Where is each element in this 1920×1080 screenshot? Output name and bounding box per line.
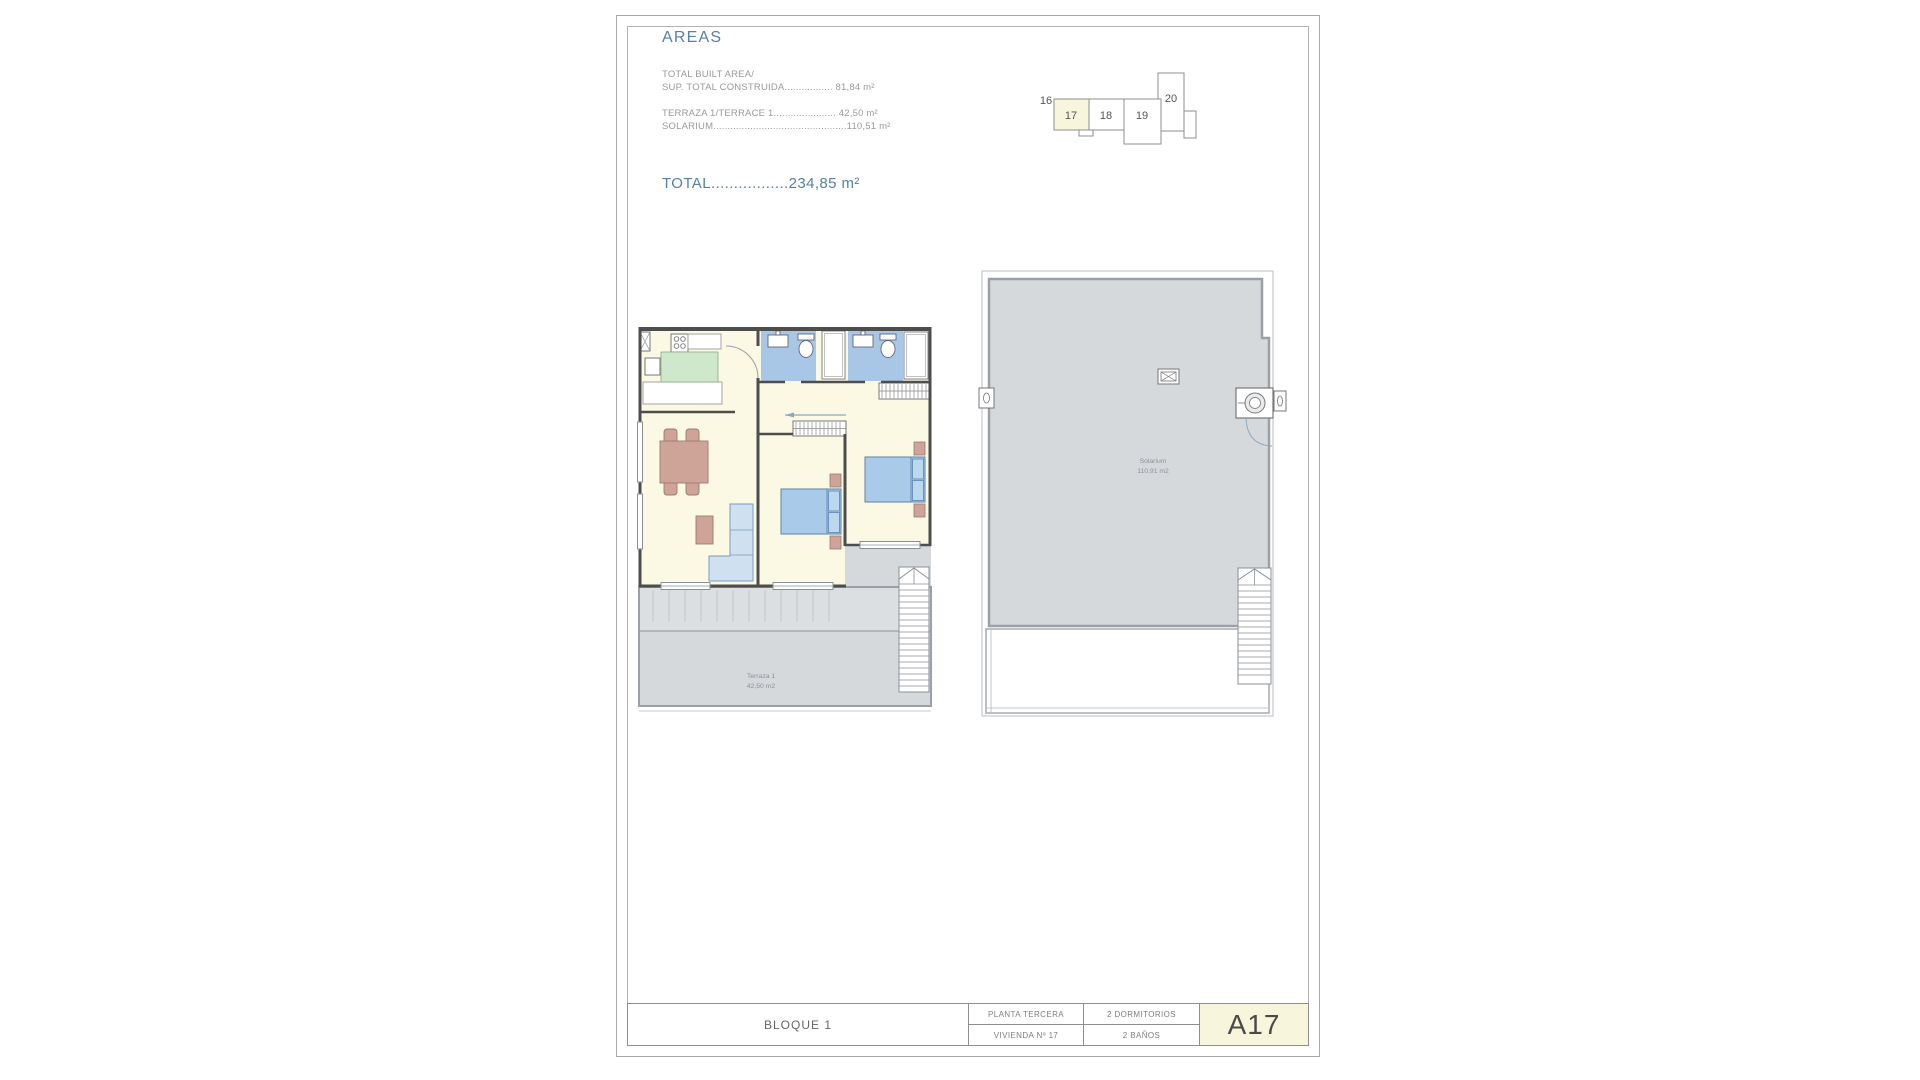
solarium-area-label: 110,91 m2 [1137,468,1169,475]
kitchen-counter-low [643,382,722,404]
kitchen-island [661,352,718,382]
sink-1-icon [768,335,788,347]
bed-1 [781,489,841,534]
toilet-1-icon [799,341,813,358]
terrace-area-label: 42,50 m2 [747,683,776,690]
shower-2-inner [907,335,926,377]
apartment-floor-plan: Terraza 1 42,50 m2 [637,322,937,714]
key-unit-19-label: 19 [1136,110,1148,122]
floor-cell: PLANTA TERCERA [969,1004,1083,1024]
key-unit-20-wing [1184,111,1196,138]
key-unit-18-label: 18 [1100,110,1112,122]
washer-icon [1236,388,1273,418]
staircase [899,567,929,692]
built-area-label: TOTAL BUILT AREA/ [662,69,922,82]
dining-table [660,441,708,483]
toilet-2-icon [881,341,895,358]
sink-2-faucet [861,331,865,335]
skylight-icon [1158,369,1179,384]
solarium-line: SOLARIUM................................… [662,121,922,134]
nightstand [914,504,925,517]
unit-code-cell: A17 [1199,1004,1308,1045]
drawing-sheet: AREAS TOTAL BUILT AREA/ SUP. TOTAL CONST… [616,15,1320,1057]
pillow [913,459,924,479]
terrace-line: TERRAZA 1/TERRACE 1.....................… [662,108,922,121]
terrace-label: Terraza 1 [747,673,776,680]
rooms-column: 2 DORMITORIOS 2 BAÑOS [1083,1004,1199,1045]
terrace-solarium-lines: TERRAZA 1/TERRACE 1.....................… [662,108,922,133]
bathrooms-cell: 2 BAÑOS [1084,1024,1199,1045]
block-name-cell: BLOQUE 1 [628,1004,968,1045]
wardrobe-1 [879,383,930,399]
nightstand [830,474,841,487]
pillow [913,481,924,501]
staircase [1238,568,1271,684]
built-area-value-line: SUP. TOTAL CONSTRUIDA................. 8… [662,82,922,95]
tv-cabinet [696,516,713,544]
sink-1-faucet [776,331,780,335]
left-fixture-icon [979,388,994,408]
key-unit-17-label: 17 [1065,110,1077,122]
shower-1-inner [825,334,843,377]
sink-2-icon [853,335,873,347]
key-unit-16-label: 16 [1040,95,1052,107]
key-unit-20-label: 20 [1165,93,1177,105]
terrace-upper-strip [639,587,931,631]
pillow [829,491,840,511]
key-plan: 16 17 18 19 20 [1021,56,1221,166]
nightstand [914,442,925,455]
solarium-label: Solarium [1140,458,1167,465]
key-tab-1 [1079,130,1093,136]
dwelling-cell: VIVIENDA Nº 17 [969,1024,1083,1045]
built-area-lines: TOTAL BUILT AREA/ SUP. TOTAL CONSTRUIDA.… [662,69,922,94]
toilet-2-tank [880,334,896,340]
areas-heading: AREAS [662,29,922,47]
nightstand [830,536,841,549]
fridge-icon [645,358,660,375]
right-fixture-icon [1274,391,1286,411]
pillow [829,513,840,533]
void-below [986,629,1269,713]
solarium-plan: Solarium 110,91 m2 [977,267,1289,724]
total-area-line: TOTAL.................234,85 m² [662,175,860,192]
areas-panel: AREAS TOTAL BUILT AREA/ SUP. TOTAL CONST… [662,29,922,133]
bedrooms-cell: 2 DORMITORIOS [1084,1004,1199,1024]
title-block: BLOQUE 1 PLANTA TERCERA VIVIENDA Nº 17 2… [627,1003,1309,1046]
floor-dwelling-column: PLANTA TERCERA VIVIENDA Nº 17 [968,1004,1083,1045]
kitchen-counter-top [688,334,721,349]
bed-2 [865,457,925,502]
stove-icon [671,334,688,352]
toilet-1-tank [798,334,814,340]
solarium-floor [989,279,1269,626]
